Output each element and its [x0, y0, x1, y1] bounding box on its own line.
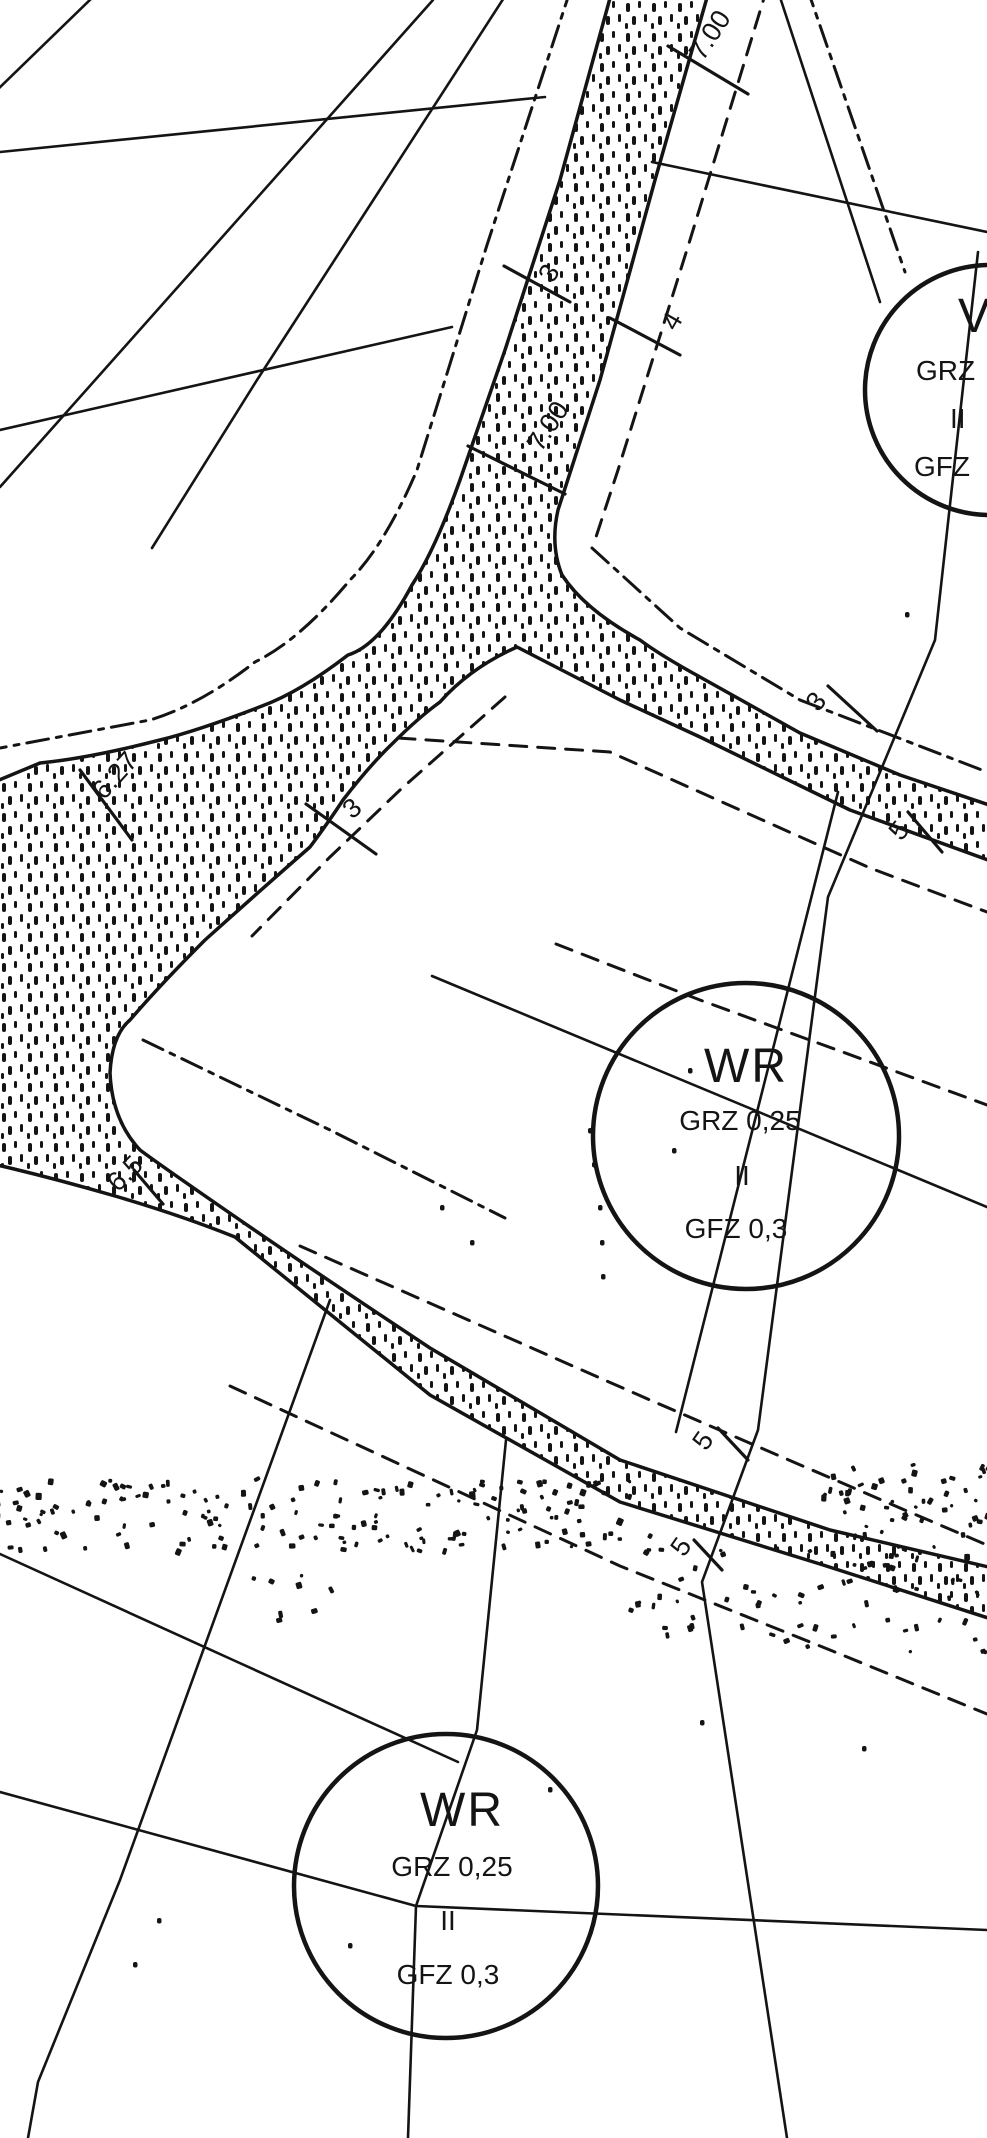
dimension-tick: [718, 1428, 748, 1460]
dust-dot: [506, 1530, 511, 1534]
dust-dot: [407, 1481, 414, 1489]
dust-dot: [501, 1543, 507, 1551]
dust-dot: [719, 1549, 723, 1553]
dust-dot: [338, 1536, 344, 1541]
dust-dot: [174, 1548, 182, 1557]
dust-dot: [59, 1531, 67, 1540]
stray-dot: [688, 1068, 693, 1074]
parcel-line: [0, 97, 545, 152]
stray-dot: [440, 1205, 445, 1211]
dust-dot: [665, 1632, 670, 1639]
dust-dot: [838, 1490, 844, 1496]
dust-dot: [54, 1530, 60, 1536]
dust-dot: [360, 1520, 367, 1527]
stray-dot: [600, 1240, 605, 1246]
dust-dot: [416, 1548, 423, 1554]
dust-dot: [769, 1632, 776, 1638]
stray-dot: [470, 1240, 475, 1246]
dust-dot: [690, 1614, 696, 1621]
dust-dot: [442, 1548, 448, 1556]
dust-dot: [248, 1503, 253, 1510]
dust-dot: [148, 1483, 154, 1490]
dust-dot: [911, 1469, 918, 1477]
dust-dot: [932, 1545, 936, 1550]
dust-dot: [166, 1480, 170, 1487]
dust-dot: [295, 1581, 303, 1589]
stray-dot: [672, 1148, 677, 1154]
dust-dot: [352, 1525, 357, 1530]
dust-dot: [311, 1608, 319, 1615]
parcel-line: [0, 1554, 458, 1762]
stray-dot: [862, 1746, 867, 1752]
stray-dot: [348, 1943, 353, 1949]
dust-dot: [71, 1509, 76, 1514]
dust-dot: [830, 1473, 836, 1480]
dust-dot: [884, 1506, 890, 1510]
dust-dot: [192, 1489, 197, 1494]
dust-dot: [841, 1579, 846, 1586]
dust-dot: [479, 1482, 486, 1488]
dust-dot: [937, 1617, 942, 1623]
dust-dot: [329, 1524, 335, 1529]
dust-dot: [797, 1592, 805, 1599]
dust-dot: [739, 1623, 745, 1630]
dust-dot: [409, 1545, 415, 1553]
dust-dot: [340, 1547, 347, 1553]
dust-dot: [941, 1478, 948, 1484]
parcel-line: [152, 0, 509, 548]
plan-drawing: VGRZIIGFZWRGRZ 0,25IIGFZ 0,3WRGRZ 0,25II…: [0, 0, 987, 2138]
zone-label: GFZ 0,3: [397, 1959, 500, 1990]
dust-dot: [83, 1546, 87, 1551]
stray-dot: [133, 1962, 138, 1968]
dust-dot: [968, 1522, 972, 1528]
dust-dot: [846, 1578, 853, 1584]
dimension-label: 3: [800, 686, 833, 717]
dust-dot: [142, 1491, 149, 1498]
dust-dot: [300, 1574, 304, 1578]
dimension-tick: [828, 686, 877, 731]
stray-dot: [592, 1162, 597, 1168]
dust-dot: [187, 1537, 192, 1542]
zone-label: GRZ 0,25: [679, 1105, 800, 1136]
dust-dot: [268, 1578, 275, 1585]
dust-dot: [122, 1523, 126, 1529]
dust-dot: [108, 1479, 112, 1483]
dust-dot: [651, 1603, 655, 1610]
stray-dot: [588, 1128, 593, 1134]
dust-dot: [678, 1576, 685, 1582]
dust-dot: [890, 1518, 895, 1523]
zone-label: GRZ 0,25: [391, 1851, 512, 1882]
dust-dot: [922, 1499, 926, 1504]
dust-dot: [603, 1533, 607, 1540]
dust-dot: [180, 1493, 186, 1498]
dust-dot: [772, 1593, 778, 1598]
stray-dot: [601, 1274, 606, 1280]
dust-dot: [585, 1541, 591, 1547]
dust-dot: [203, 1497, 208, 1503]
dust-dot: [864, 1600, 869, 1608]
dimension-label: 5: [664, 1532, 697, 1562]
dust-dot: [373, 1520, 378, 1525]
dust-dot: [550, 1516, 554, 1520]
dust-dot: [279, 1528, 286, 1536]
dust-dot: [577, 1518, 582, 1523]
parcel-line: [416, 1906, 987, 1930]
dust-dot: [318, 1523, 324, 1527]
dust-dot: [580, 1532, 586, 1538]
dust-dot: [554, 1515, 558, 1520]
dimension-label: 5: [686, 1426, 719, 1456]
dust-dot: [6, 1520, 12, 1526]
dust-dot: [798, 1601, 803, 1605]
dust-dot: [182, 1510, 188, 1517]
parcel-line: [28, 1300, 330, 2138]
dust-dot: [399, 1488, 404, 1495]
dust-dot: [843, 1497, 851, 1505]
zone-label: V: [958, 290, 987, 343]
dust-dot: [926, 1497, 934, 1505]
dust-dot: [724, 1596, 730, 1603]
dust-dot: [298, 1485, 304, 1492]
dust-dot: [469, 1491, 476, 1499]
dust-dot: [950, 1504, 954, 1508]
dust-dot: [18, 1547, 23, 1554]
dust-dot: [0, 1489, 4, 1493]
dust-dot: [461, 1531, 466, 1536]
dust-dot: [269, 1503, 276, 1511]
dust-dot: [901, 1478, 907, 1484]
dust-dot: [542, 1479, 547, 1484]
stray-dot: [598, 1205, 603, 1211]
dust-dot: [215, 1494, 220, 1499]
dust-dot: [910, 1462, 916, 1467]
dust-dot: [942, 1507, 948, 1512]
dust-dot: [218, 1535, 225, 1541]
dust-dot: [290, 1497, 296, 1503]
zone-label: II: [440, 1905, 456, 1936]
dimension-label: 3: [337, 792, 368, 825]
parcel-line: [0, 327, 452, 430]
dust-dot: [212, 1544, 217, 1549]
dust-dot: [516, 1508, 520, 1512]
dust-dot: [436, 1493, 442, 1498]
dust-dot: [486, 1516, 491, 1521]
road-band-shape: [0, 0, 987, 1625]
dust-dot: [261, 1513, 265, 1519]
dust-dot: [743, 1584, 749, 1590]
dust-dot: [12, 1500, 19, 1505]
dust-dot: [499, 1486, 503, 1491]
dust-dot: [99, 1480, 107, 1488]
dust-dot: [101, 1498, 107, 1505]
dust-dot: [545, 1540, 549, 1544]
dust-dot: [775, 1546, 779, 1551]
parcel-line: [0, 0, 95, 92]
dust-dot: [314, 1480, 321, 1488]
dust-dot: [289, 1543, 296, 1548]
dust-dot: [517, 1479, 524, 1485]
dust-dot: [473, 1502, 480, 1507]
parcel-line: [652, 162, 987, 232]
dust-dot: [333, 1479, 338, 1485]
dust-dot: [805, 1644, 811, 1650]
dust-dot: [871, 1483, 879, 1491]
dust-dot: [961, 1532, 966, 1538]
dust-dot: [362, 1489, 369, 1495]
dust-dot: [373, 1488, 380, 1493]
dust-dot: [448, 1537, 454, 1541]
dust-dot: [617, 1537, 622, 1541]
dust-dot: [552, 1489, 559, 1497]
zone-label: WR: [420, 1784, 504, 1837]
dust-dot: [692, 1565, 697, 1572]
dust-dot: [908, 1487, 913, 1493]
dust-dot: [783, 1637, 791, 1644]
dust-dot: [949, 1475, 956, 1481]
dust-dot: [449, 1488, 453, 1495]
dust-dot: [564, 1508, 570, 1515]
dust-dot: [371, 1525, 377, 1530]
stray-dot: [700, 1720, 705, 1726]
dust-dot: [217, 1523, 222, 1527]
dust-dot: [963, 1488, 968, 1494]
dust-dot: [16, 1486, 23, 1492]
dust-dot: [458, 1543, 464, 1547]
dust-dot: [973, 1637, 978, 1642]
zone-circles: VGRZIIGFZWRGRZ 0,25IIGFZ 0,3WRGRZ 0,25II…: [294, 265, 987, 2038]
stray-dot: [157, 1918, 162, 1924]
dust-dot: [276, 1617, 283, 1623]
road-band: [0, 0, 987, 1625]
dust-dot: [16, 1505, 23, 1512]
dust-dot: [416, 1527, 423, 1533]
dust-dot: [294, 1510, 298, 1516]
dust-dot: [491, 1496, 498, 1502]
zone-label: GFZ: [914, 451, 970, 482]
dust-dot: [50, 1508, 56, 1515]
dust-dot: [112, 1482, 120, 1491]
dimension-label: 4: [655, 307, 688, 335]
dust-dot: [830, 1551, 835, 1557]
dust-dot: [943, 1490, 950, 1497]
dust-dot: [536, 1480, 543, 1488]
zone-label: II: [950, 403, 966, 434]
dust-dot: [535, 1541, 541, 1548]
dust-dot: [36, 1518, 42, 1525]
zone-label: GRZ: [916, 355, 975, 386]
dust-dot: [608, 1531, 613, 1536]
dust-dot: [546, 1506, 552, 1512]
dust-dot: [377, 1538, 383, 1543]
dust-dot: [615, 1517, 624, 1526]
dust-dot: [48, 1478, 54, 1485]
dust-dot: [885, 1617, 891, 1622]
dust-dot: [851, 1465, 857, 1472]
dust-dot: [539, 1494, 544, 1500]
dust-dot: [119, 1483, 127, 1490]
dust-dot: [7, 1545, 13, 1549]
dust-dot: [913, 1505, 918, 1510]
dust-dot: [962, 1618, 969, 1627]
dust-dot: [662, 1626, 668, 1631]
dust-dot: [964, 1554, 970, 1561]
dust-dot: [298, 1534, 305, 1540]
zone-label: GFZ 0,3: [685, 1213, 788, 1244]
dust-dot: [25, 1522, 32, 1528]
parcel-line: [0, 1792, 416, 1906]
dust-dot: [374, 1513, 379, 1519]
dust-dot: [878, 1477, 885, 1485]
dust-dot: [506, 1518, 510, 1522]
dust-dot: [161, 1484, 166, 1488]
dust-dot: [313, 1535, 318, 1541]
dust-dot: [338, 1497, 342, 1504]
dust-dot: [354, 1541, 359, 1547]
dust-dot: [213, 1516, 218, 1521]
dust-dot: [426, 1503, 431, 1507]
dust-dot: [812, 1624, 819, 1632]
dust-dot: [566, 1482, 573, 1489]
dust-dot: [166, 1499, 170, 1504]
dust-dot: [843, 1510, 848, 1515]
parcel-line: [702, 252, 978, 2138]
dust-dot: [831, 1634, 837, 1638]
zone-label: II: [734, 1160, 750, 1191]
stray-dot: [548, 1787, 553, 1793]
dust-dot: [23, 1489, 31, 1498]
dust-dot: [579, 1488, 587, 1496]
dust-dot: [517, 1527, 523, 1532]
dust-dot: [566, 1500, 573, 1505]
dust-dot: [817, 1584, 825, 1591]
zone-label: WR: [704, 1040, 788, 1093]
dust-dot: [675, 1599, 679, 1604]
dust-dot: [845, 1490, 850, 1497]
dust-dot: [278, 1610, 283, 1618]
dust-dot: [253, 1476, 261, 1483]
dust-dot: [254, 1543, 260, 1549]
dust-dot: [862, 1532, 867, 1538]
dust-dot: [135, 1494, 141, 1499]
dust-dot: [149, 1522, 155, 1528]
dust-dot: [381, 1488, 386, 1495]
dust-dot: [879, 1529, 884, 1534]
dust-dot: [23, 1517, 28, 1521]
dust-dot: [561, 1528, 568, 1535]
dust-dot: [221, 1543, 228, 1550]
dust-dot: [797, 1623, 804, 1629]
dust-dot: [973, 1498, 978, 1503]
dust-dot: [94, 1515, 100, 1521]
dust-dot: [179, 1542, 185, 1547]
dust-dot: [378, 1496, 383, 1500]
dust-dot: [852, 1623, 857, 1629]
dust-dot: [85, 1501, 92, 1507]
dust-dot: [206, 1519, 214, 1527]
dust-dot: [903, 1628, 909, 1632]
dust-dot: [978, 1475, 983, 1479]
dust-dot: [0, 1500, 1, 1507]
dust-dot: [457, 1499, 461, 1503]
dust-dot: [751, 1590, 756, 1594]
dust-dot: [43, 1546, 48, 1552]
dust-dot: [260, 1525, 266, 1532]
dust-dot: [126, 1484, 133, 1489]
dust-dot: [422, 1538, 426, 1544]
dust-dot: [207, 1509, 211, 1513]
dust-dot: [864, 1524, 869, 1528]
dust-dot: [385, 1534, 390, 1539]
dust-dot: [328, 1586, 335, 1594]
dust-dot: [124, 1542, 131, 1550]
stray-dot: [905, 612, 910, 618]
dust-dot: [828, 1487, 833, 1495]
dust-dot: [404, 1541, 409, 1548]
dust-dot: [342, 1540, 346, 1544]
dust-dot: [658, 1548, 664, 1552]
dust-dot: [657, 1593, 662, 1600]
dust-dot: [857, 1482, 864, 1488]
dust-dot: [647, 1533, 653, 1540]
dust-dot: [628, 1607, 634, 1613]
dust-dot: [908, 1649, 912, 1653]
dust-dot: [224, 1503, 229, 1509]
dust-dot: [578, 1504, 584, 1509]
dust-dot: [35, 1493, 41, 1500]
dust-dot: [251, 1576, 256, 1581]
dust-dot: [520, 1488, 528, 1495]
zoning-plan-map: VGRZIIGFZWRGRZ 0,25IIGFZ 0,3WRGRZ 0,25II…: [0, 0, 987, 2138]
dust-dot: [914, 1624, 920, 1632]
dust-dot: [888, 1553, 894, 1559]
dust-dot: [115, 1532, 121, 1537]
dust-dot: [394, 1485, 399, 1492]
